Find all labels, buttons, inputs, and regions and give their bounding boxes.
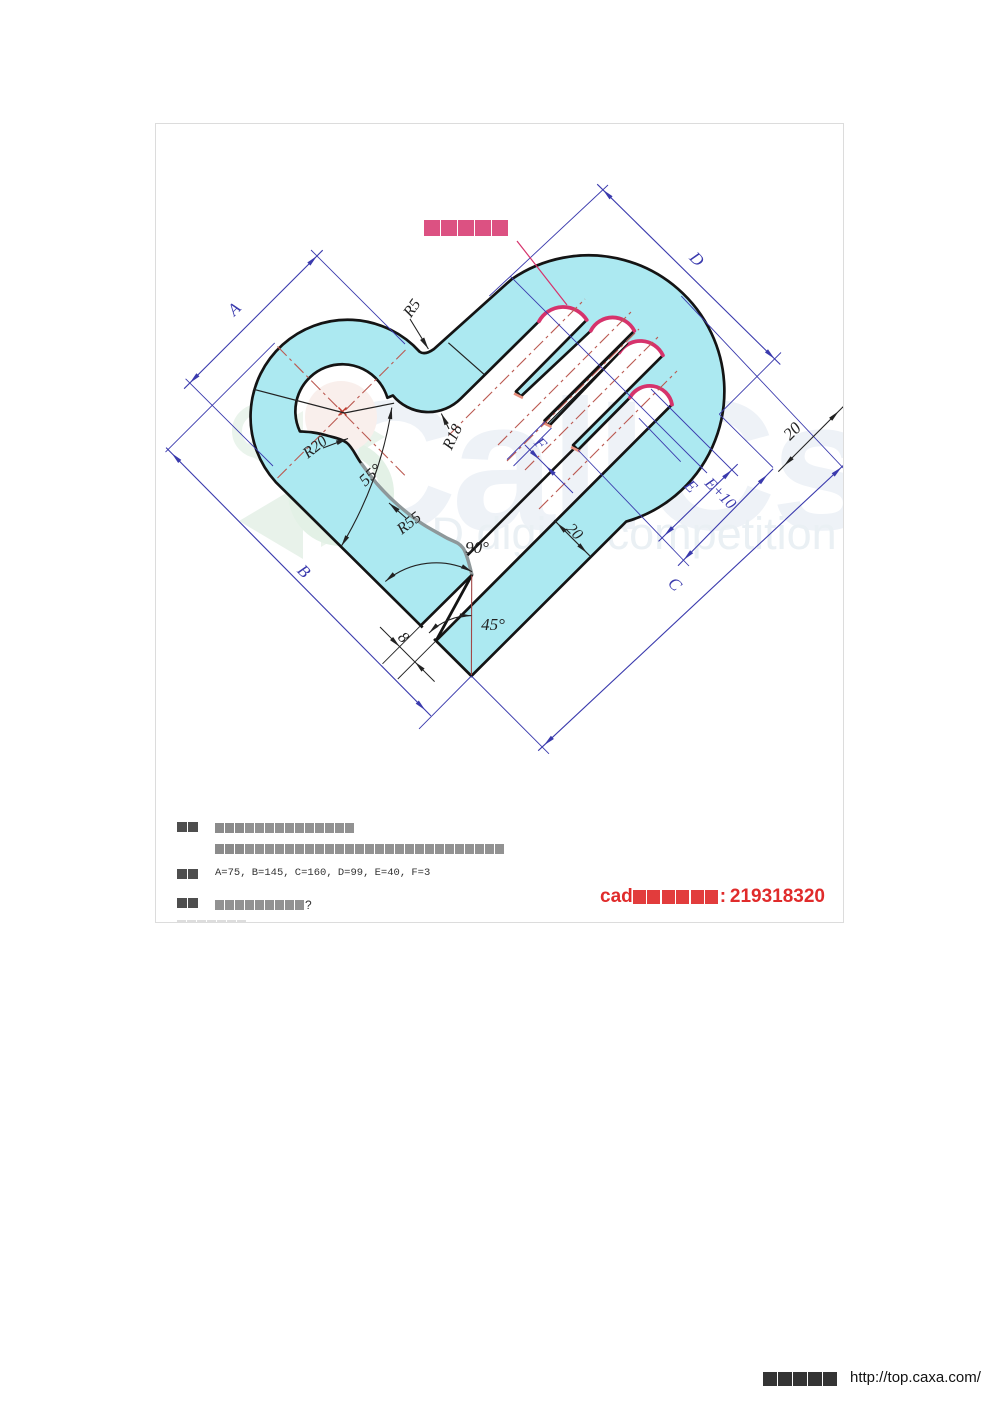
svg-text:C: C (664, 573, 686, 595)
svg-text:R5: R5 (400, 296, 425, 321)
svg-text:45°: 45° (481, 615, 505, 634)
svg-text:90°: 90° (465, 538, 489, 557)
svg-text:B: B (293, 561, 314, 582)
svg-text:D: D (685, 247, 708, 270)
svg-text:A: A (223, 298, 245, 320)
